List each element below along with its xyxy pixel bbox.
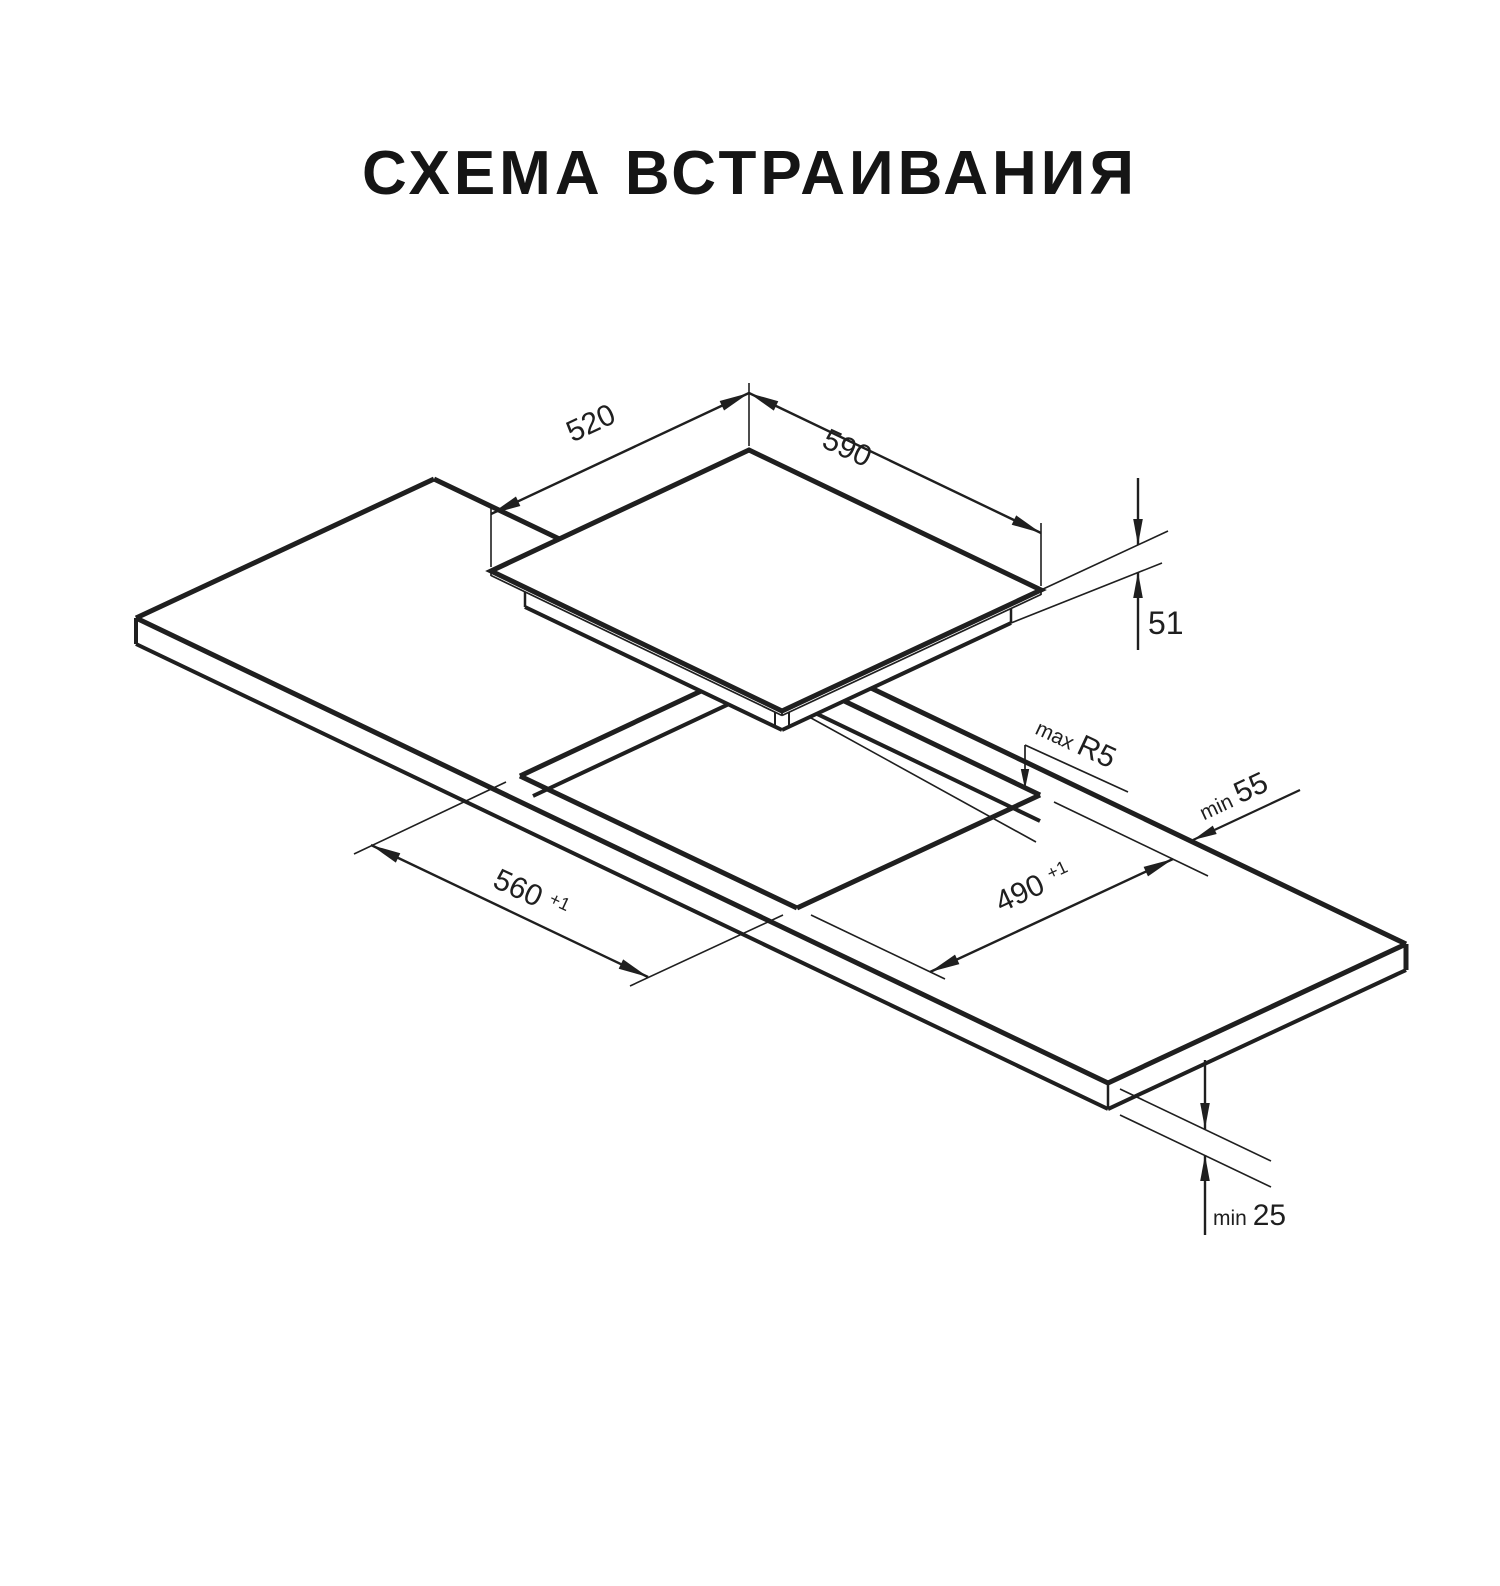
dim-min25-upper-arrow-end: [1200, 1103, 1210, 1129]
dim-label-51-part: 51: [1148, 605, 1184, 641]
dim-label-520-part: 520: [561, 398, 620, 449]
dim-590-line-arrow-start: [749, 393, 778, 411]
ext-51-top: [1041, 531, 1168, 590]
dim-label-560-part: 560: [488, 863, 555, 918]
page: СХЕМА ВСТРАИВАНИЯ 52059051max R5min 5556…: [0, 0, 1500, 1586]
dim-label-min-25: min 25: [1213, 1199, 1286, 1232]
dim-min25-lower-arrow-end: [1200, 1155, 1210, 1181]
dim-51-upper-arrow-end: [1133, 519, 1143, 545]
dim-label-520: 520: [561, 398, 620, 449]
ext-560-w: [354, 782, 506, 854]
installation-diagram: 52059051max R5min 55560 +1490 +1min 25: [0, 0, 1500, 1586]
dim-label-51: 51: [1148, 605, 1184, 641]
leader-min-55-arrow-end: [1193, 826, 1217, 840]
dim-label-min-55: min 55: [1193, 766, 1273, 827]
dim-520-line-arrow-start: [720, 393, 749, 410]
dim-590-line-arrow-end: [1012, 515, 1041, 533]
dim-51-lower-arrow-end: [1133, 572, 1143, 598]
dim-560-line-arrow-start: [371, 845, 400, 863]
dim-label-max-r5: max R5: [1031, 710, 1121, 775]
dim-560-line-arrow-end: [619, 959, 648, 977]
dim-label-min-25-part: 25: [1253, 1199, 1286, 1232]
dim-label-min-25-part: min: [1213, 1207, 1253, 1230]
dim-label-560: 560 +1: [488, 863, 573, 926]
ext-560-s: [630, 915, 783, 986]
